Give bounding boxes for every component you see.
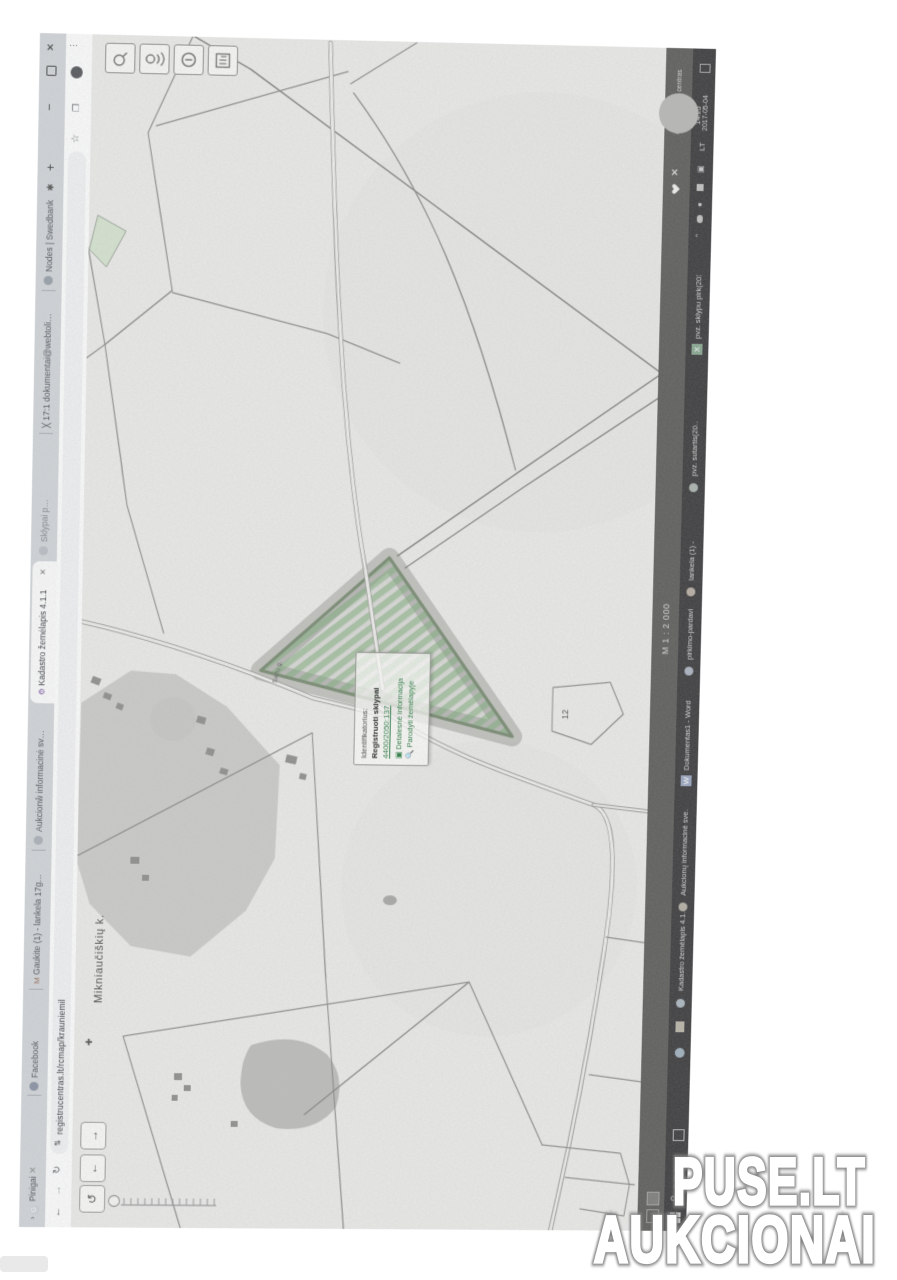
svg-text:12: 12 <box>560 709 570 719</box>
